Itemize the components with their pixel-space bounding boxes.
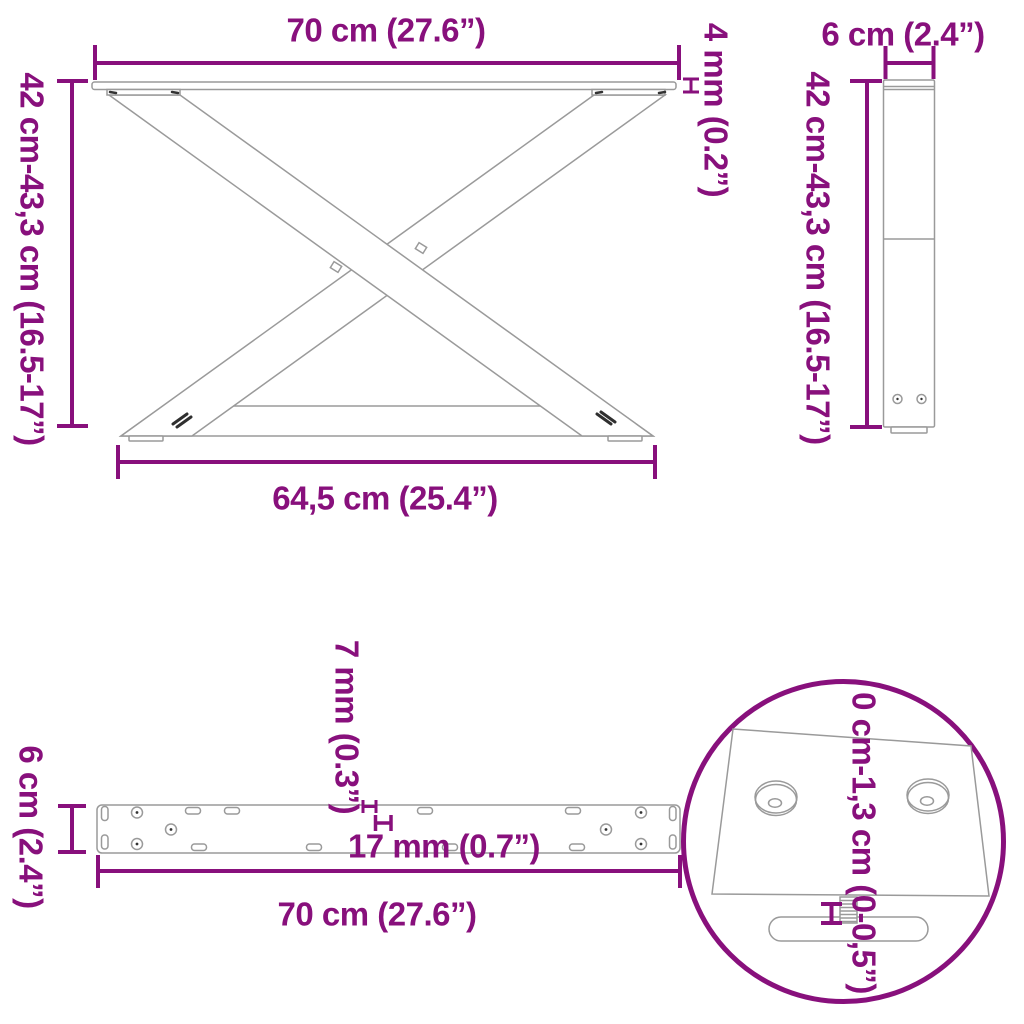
foot-detail-drawing bbox=[684, 682, 1004, 1002]
side-depth-label: 6 cm (2.4”) bbox=[821, 18, 984, 51]
front-height-label: 42 cm-43,3 cm (16.5-17”) bbox=[16, 72, 49, 445]
plate-width-label: 70 cm (27.6”) bbox=[278, 898, 477, 931]
front-plate-thickness-label: 4 mm (0.2”) bbox=[700, 23, 733, 197]
foot-adjust-range-label: 0 cm-1,3 cm (0-0,5”) bbox=[848, 692, 881, 994]
side-view-drawing bbox=[884, 80, 935, 433]
product-dimension-diagram: 70 cm (27.6”) 42 cm-43,3 cm (16.5-17”) 4… bbox=[0, 0, 1024, 1024]
front-width-bottom-label: 64,5 cm (25.4”) bbox=[272, 482, 497, 515]
plate-hole-diameter-label: 17 mm (0.7”) bbox=[348, 830, 540, 863]
side-height-label: 42 cm-43,3 cm (16.5-17”) bbox=[802, 71, 835, 444]
plate-depth-label: 6 cm (2.4”) bbox=[15, 745, 48, 908]
front-width-top-label: 70 cm (27.6”) bbox=[287, 14, 486, 47]
front-view-drawing bbox=[92, 82, 676, 441]
plate-slot-width-label: 7 mm (0.3”) bbox=[331, 640, 364, 814]
